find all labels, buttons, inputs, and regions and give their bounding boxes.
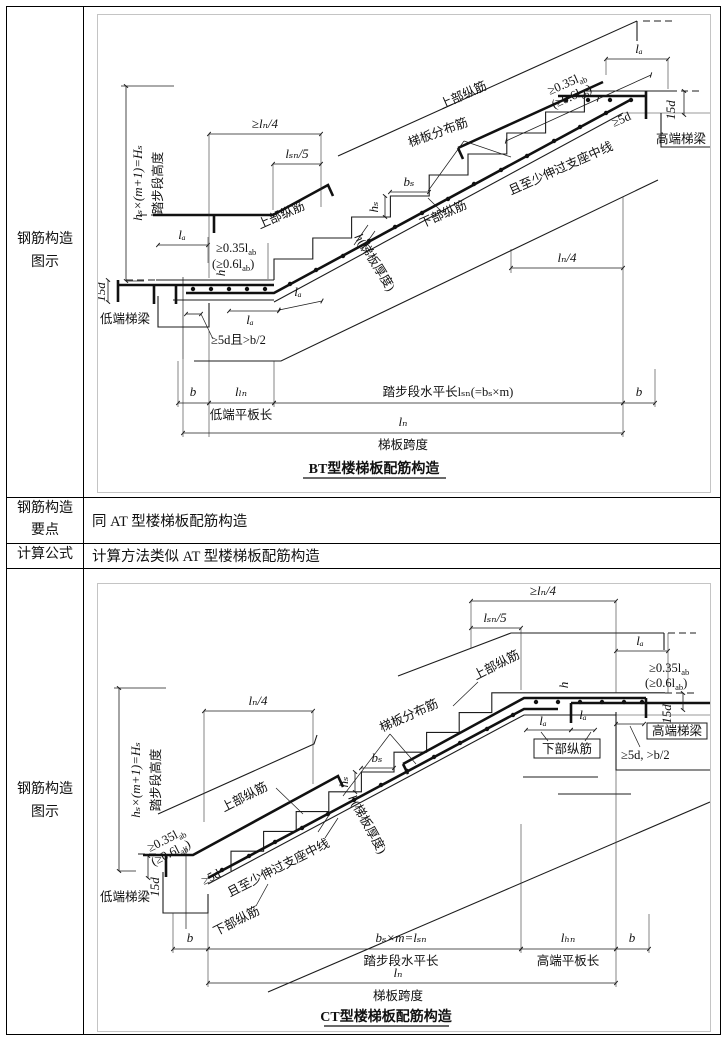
ct-diagram: ≥lₙ/4 lₛₙ/5 上部纵筋 lₐ ≥0.35lab (≥0.6lab) h… xyxy=(98,584,710,1031)
bt-035lab: ≥0.35lab xyxy=(216,241,256,257)
ct-15d-high: 15d xyxy=(659,704,674,724)
bt-15d-low: 15d xyxy=(98,282,108,302)
bt-hs: hₛ xyxy=(366,202,381,213)
ct-lower-bar-box: 下部纵筋 xyxy=(542,741,592,756)
ct-hs: hₛ xyxy=(336,777,351,788)
bt-diagram-frame: hₛ×(m+1)=Hₛ 踏步段高度 15d 低端梯梁 ≥5d且>b/2 lₐ ≥… xyxy=(97,14,711,493)
header-text: 图示 xyxy=(31,252,59,274)
bt-diagram: hₛ×(m+1)=Hₛ 踏步段高度 15d 低端梯梁 ≥5d且>b/2 lₐ ≥… xyxy=(98,15,710,492)
ct-low-beam-label: 低端梯梁 xyxy=(100,889,151,904)
ct-lower-bar-low: 下部纵筋 xyxy=(211,903,262,939)
ct-035lab-high: ≥0.35lab xyxy=(649,661,689,677)
ct-title: CT型楼梯板配筋构造 xyxy=(320,1008,451,1025)
bt-low-beam-label: 低端梯梁 xyxy=(100,311,151,326)
ct-tread-formula: bₛ×m=lₛₙ xyxy=(375,930,426,945)
header-ct-diagram: 钢筋构造 图示 xyxy=(7,568,83,1035)
ct-geq-ln4: ≥lₙ/4 xyxy=(530,584,557,598)
cell-points-text: 同 AT 型楼梯板配筋构造 xyxy=(92,497,712,543)
bt-b-right: b xyxy=(636,384,643,399)
header-text: 钢筋构造 xyxy=(17,779,73,801)
bt-structure xyxy=(118,21,710,478)
bt-tread-len: 踏步段水平长lₛₙ(=bₛ×m) xyxy=(383,384,514,399)
bt-5d-high: ≥5d xyxy=(610,109,634,130)
ct-rebar-dots xyxy=(220,700,644,872)
bt-dist-bar: 梯板分布筋 xyxy=(406,114,470,149)
ct-b-left: b xyxy=(187,930,194,945)
ct-anchor-mid: 且至少伸过支座中线 xyxy=(225,835,332,900)
bt-la-low: lₐ xyxy=(178,227,186,242)
cell-formula-text: 计算方法类似 AT 型楼梯板配筋构造 xyxy=(92,543,712,568)
bt-b-left: b xyxy=(190,384,197,399)
ct-h-high: h xyxy=(556,682,571,689)
bt-dimensions xyxy=(108,59,684,437)
header-text: 钢筋构造 xyxy=(17,498,73,520)
bt-step-height-label: 踏步段高度 xyxy=(150,151,165,214)
ct-upper-bar-high: 上部纵筋 xyxy=(471,647,522,683)
bt-ln4-mid: lₙ/4 xyxy=(558,250,577,265)
bt-lsn5: lₛₙ/5 xyxy=(285,146,309,161)
bt-ln: lₙ xyxy=(399,414,408,429)
ct-b-right: b xyxy=(629,930,636,945)
bt-title: BT型楼梯板配筋构造 xyxy=(309,460,440,477)
ct-ln4: lₙ/4 xyxy=(249,693,268,708)
ct-lhn: lₕₙ xyxy=(561,930,576,945)
header-formula: 计算公式 xyxy=(7,543,83,568)
formula-text: 计算方法类似 AT 型楼梯板配筋构造 xyxy=(92,545,320,566)
bt-la-slab-1: lₐ xyxy=(246,312,254,327)
bt-la-slab-2: lₐ xyxy=(294,284,302,299)
bt-bs: bₛ xyxy=(404,174,415,189)
ct-step-height-formula: hₛ×(m+1)=Hₛ xyxy=(128,742,143,818)
bt-span-label: 梯板跨度 xyxy=(378,437,429,452)
header-bt-diagram: 钢筋构造 图示 xyxy=(7,6,83,497)
bt-la-top: lₐ xyxy=(635,41,643,56)
header-text: 钢筋构造 xyxy=(17,229,73,251)
bt-low-slab-len: 低端平板长 xyxy=(210,408,273,422)
ct-la-landing-1: lₐ xyxy=(539,713,547,728)
header-points: 钢筋构造 要点 xyxy=(7,497,83,543)
bt-high-beam-label: 高端梯梁 xyxy=(656,131,707,146)
ct-dist-bar: 梯板分布筋 xyxy=(377,696,440,735)
header-text: 要点 xyxy=(31,520,59,542)
bt-geq-ln4: ≥lₙ/4 xyxy=(252,116,279,131)
ct-5d-b2-label: ≥5d, >b/2 xyxy=(621,748,670,762)
bt-15d-high: 15d xyxy=(663,100,678,120)
ct-span-label: 梯板跨度 xyxy=(373,988,424,1003)
bt-lln: lₗₙ xyxy=(235,384,247,399)
header-text: 计算公式 xyxy=(17,544,73,566)
bt-step-height-formula: hₛ×(m+1)=Hₛ xyxy=(130,145,145,221)
bt-labels: hₛ×(m+1)=Hₛ 踏步段高度 15d 低端梯梁 ≥5d且>b/2 lₐ ≥… xyxy=(98,41,707,477)
ct-diagram-frame: ≥lₙ/4 lₛₙ/5 上部纵筋 lₐ ≥0.35lab (≥0.6lab) h… xyxy=(97,583,711,1032)
ct-ln: lₙ xyxy=(394,965,403,980)
bt-upper-bar-mid: 上部纵筋 xyxy=(255,198,307,232)
ct-lsn5: lₛₙ/5 xyxy=(483,610,507,625)
ct-high-beam-label: 高端梯梁 xyxy=(652,723,703,738)
ct-5d-low: ≥5d xyxy=(199,866,223,888)
ct-06lab-high: (≥0.6lab) xyxy=(645,676,687,692)
ct-bs: bₛ xyxy=(372,750,383,765)
ct-la-landing-2: lₐ xyxy=(579,707,587,722)
ct-slab-thickness: h(梯板厚度) xyxy=(345,792,390,856)
row-divider-3 xyxy=(6,568,721,569)
column-divider xyxy=(83,6,84,1035)
ct-step-height-label: 踏步段高度 xyxy=(148,748,163,811)
bt-h-low: h xyxy=(213,270,228,277)
bt-slab-thickness: h(梯板厚度) xyxy=(351,231,398,294)
ct-upper-bar-low: 上部纵筋 xyxy=(219,779,270,815)
ct-la-top: lₐ xyxy=(636,633,644,648)
bt-upper-bar-high: 上部纵筋 xyxy=(437,78,489,112)
points-text: 同 AT 型楼梯板配筋构造 xyxy=(92,510,247,531)
atlas-page: 钢筋构造 图示 钢筋构造 要点 同 AT 型楼梯板配筋构造 计算公式 计算方法类… xyxy=(0,0,727,1041)
ct-labels: ≥lₙ/4 lₛₙ/5 上部纵筋 lₐ ≥0.35lab (≥0.6lab) h… xyxy=(100,584,702,1025)
header-text: 图示 xyxy=(31,802,59,824)
ct-035lab-low: ≥0.35lab (≥0.6lab) xyxy=(142,824,194,870)
bt-5d-b2-label: ≥5d且>b/2 xyxy=(211,333,266,347)
ct-high-slab-len: 高端平板长 xyxy=(537,953,600,968)
